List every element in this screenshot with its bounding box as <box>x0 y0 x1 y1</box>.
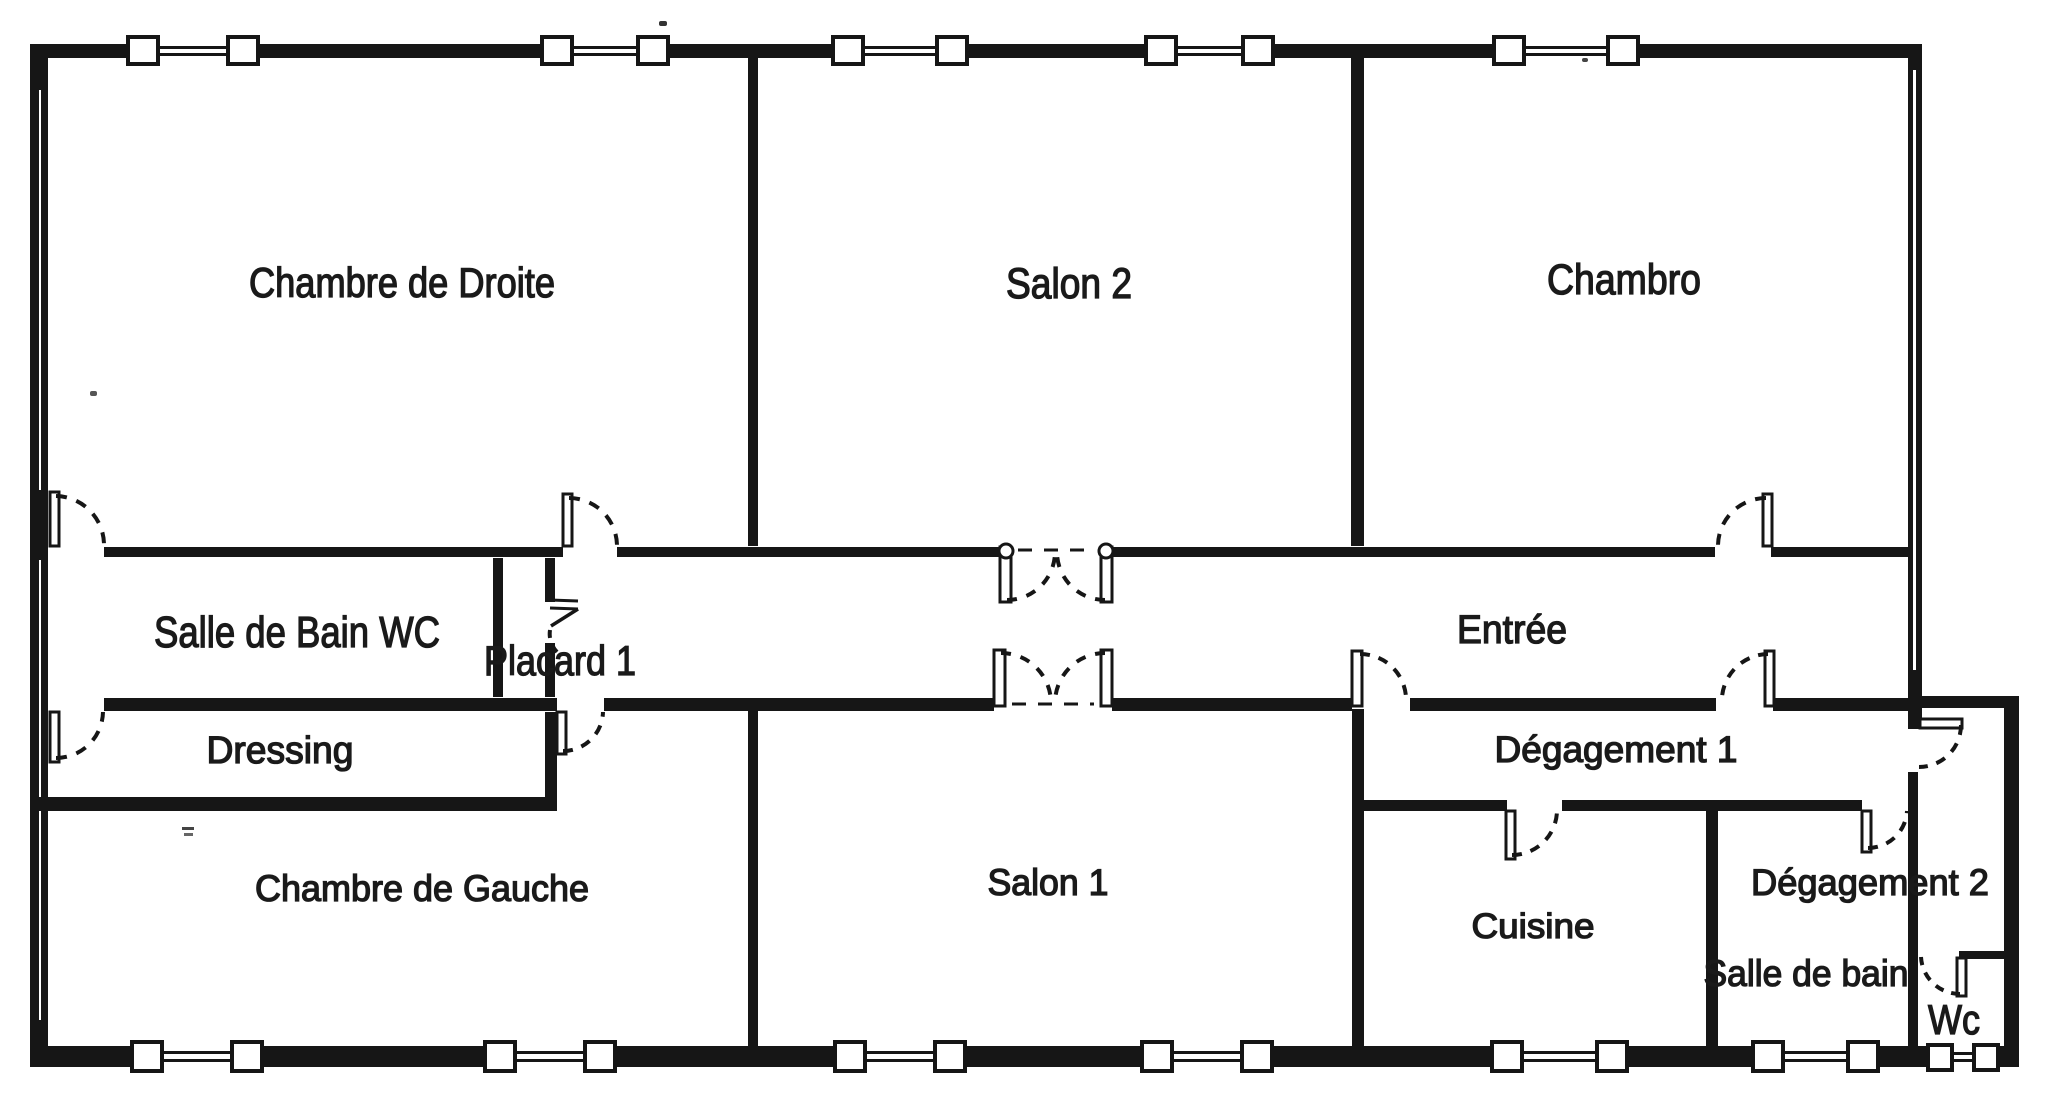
svg-text:Dressing: Dressing <box>207 730 354 772</box>
svg-text:Salon 2: Salon 2 <box>1006 260 1132 308</box>
svg-text:Salon 1: Salon 1 <box>988 862 1109 903</box>
svg-text:Salle de Bain WC: Salle de Bain WC <box>154 608 440 657</box>
svg-text:Dégagement 1: Dégagement 1 <box>1495 729 1738 770</box>
svg-text:Entrée: Entrée <box>1457 608 1567 652</box>
svg-text:Placard 1: Placard 1 <box>484 637 636 684</box>
svg-text:Dégagement 2: Dégagement 2 <box>1751 862 1989 903</box>
svg-text:Chambre de Gauche: Chambre de Gauche <box>255 868 589 909</box>
svg-text:Salle de bain: Salle de bain <box>1704 953 1909 994</box>
svg-text:Wc: Wc <box>1928 996 1980 1043</box>
svg-text:Chambre de Droite: Chambre de Droite <box>249 259 555 306</box>
svg-text:Cuisine: Cuisine <box>1472 907 1595 946</box>
svg-text:Chambro: Chambro <box>1547 256 1701 304</box>
